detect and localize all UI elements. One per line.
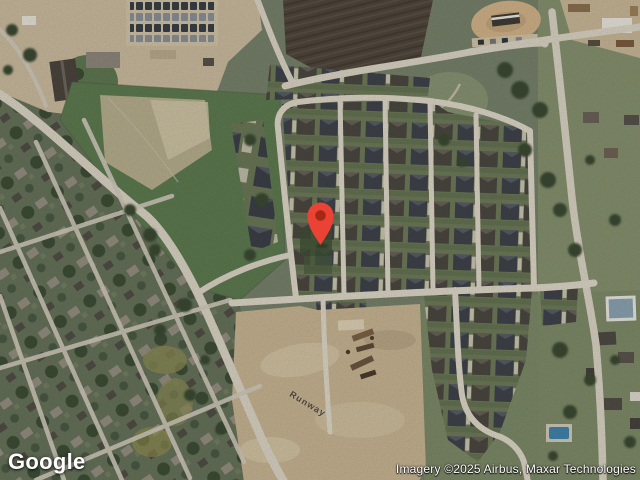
map-canvas[interactable]: Runway Google Imagery ©2025 Airbus, Maxa…: [0, 0, 640, 480]
google-logo[interactable]: Google: [8, 449, 86, 475]
satellite-imagery: [0, 0, 640, 480]
pin-dot: [315, 210, 326, 221]
